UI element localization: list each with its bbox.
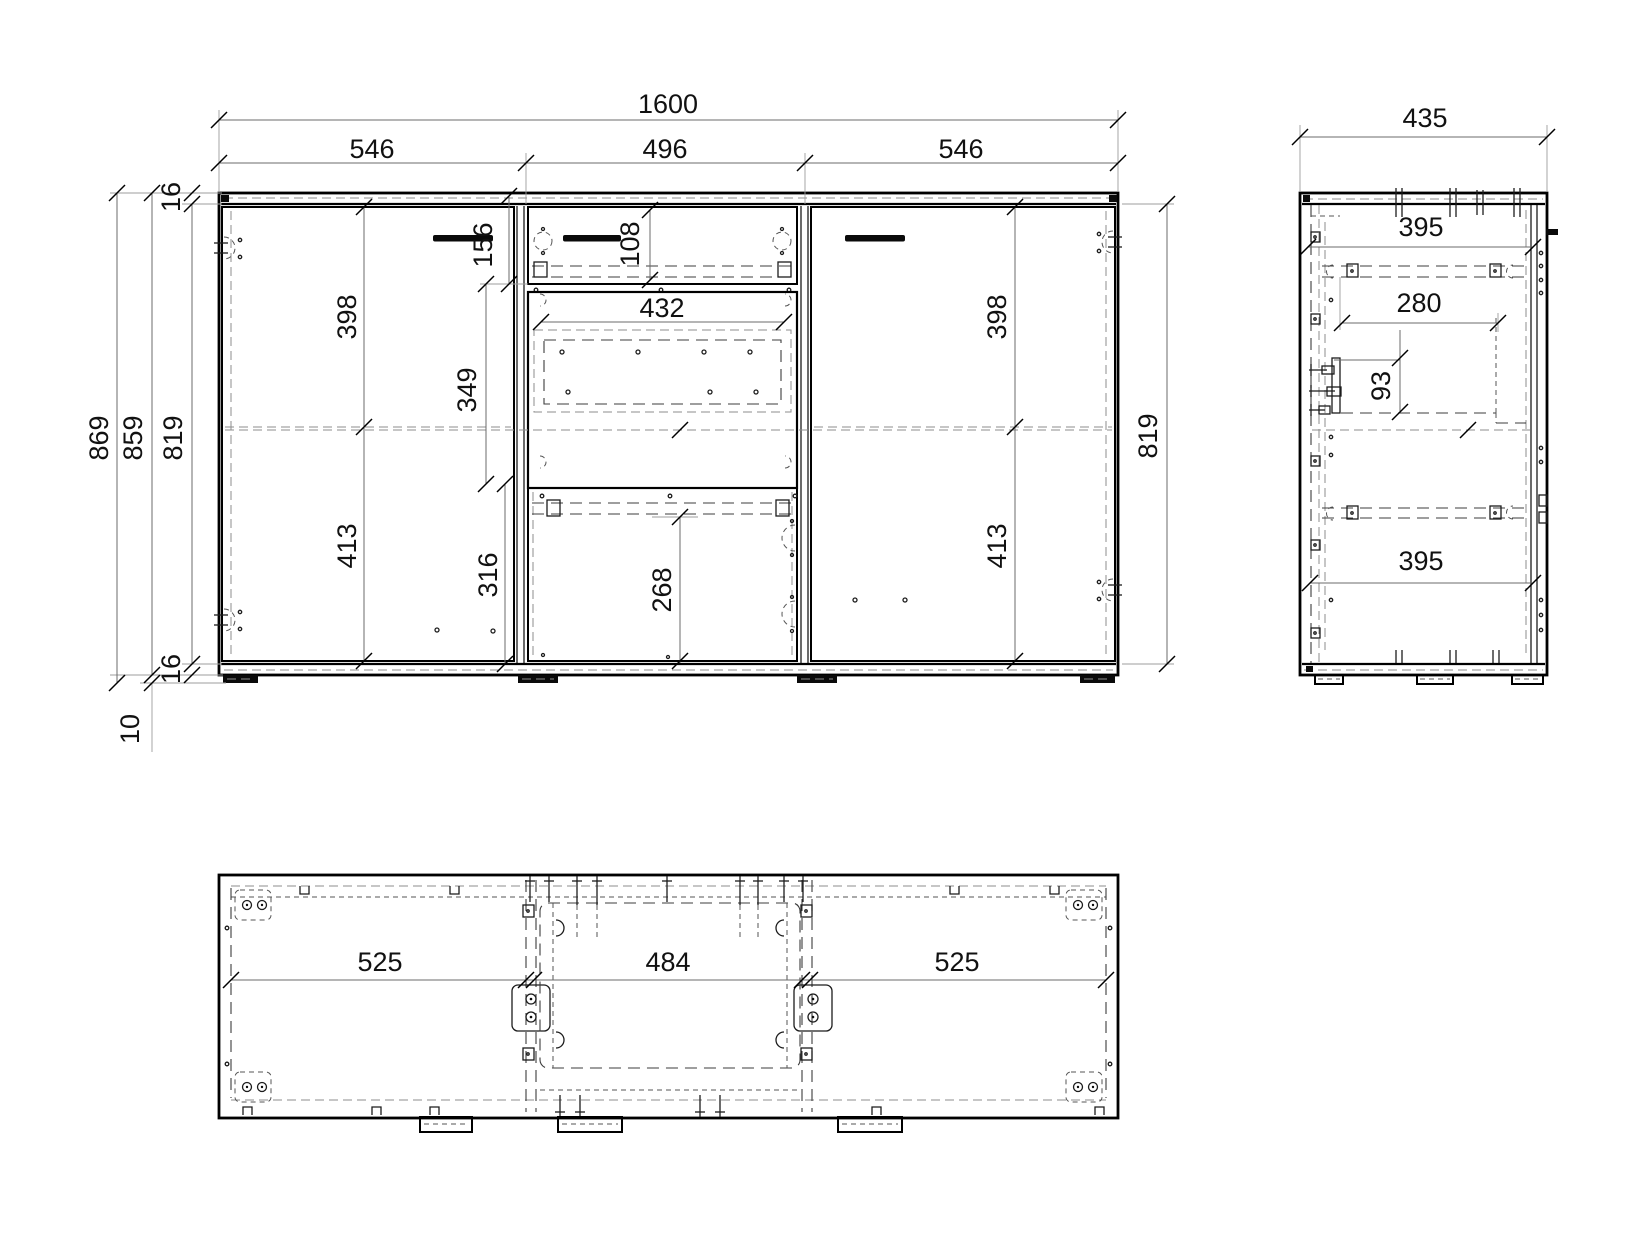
side-carcass (1300, 188, 1558, 684)
bottom-corner-brackets (235, 890, 1102, 1102)
dim-front-drawer-front: 108 (615, 221, 645, 266)
dim-front-feet-height: 10 (115, 714, 145, 744)
drawer-handle (563, 235, 621, 242)
dim-front-lower-front: 268 (647, 567, 677, 612)
drawing-page: 1600 546 496 546 869 859 819 16 16 10 15… (0, 0, 1645, 1233)
dim-front-drawer-zone: 156 (468, 222, 498, 267)
front-view: 1600 546 496 546 869 859 819 16 16 10 15… (84, 89, 1175, 752)
dim-bottom-seg-left: 525 (357, 947, 402, 977)
dim-front-lower-zone: 316 (473, 552, 503, 597)
dim-front-seg-mid: 496 (642, 134, 687, 164)
bottom-carcass (219, 875, 1118, 1118)
front-drawer (528, 207, 797, 292)
dim-front-left-lower: 413 (332, 523, 362, 568)
dim-front-top-thickness: 16 (156, 182, 186, 212)
dim-front-total-width: 1600 (638, 89, 698, 119)
dim-side-drawer-height: 93 (1366, 371, 1396, 401)
dim-side-drawer-depth: 280 (1396, 288, 1441, 318)
bottom-screws (525, 876, 808, 1117)
dim-front-height-interior: 819 (158, 415, 188, 460)
dim-front-seg-right: 546 (938, 134, 983, 164)
dim-front-height-interior-right: 819 (1133, 413, 1163, 458)
bottom-view: 525 484 525 (219, 875, 1118, 1132)
dim-side-top-depth: 395 (1398, 212, 1443, 242)
dim-front-open-height: 349 (452, 367, 482, 412)
front-right-door (811, 207, 1122, 661)
dim-side-bottom-depth: 395 (1398, 546, 1443, 576)
side-drawer (1309, 318, 1526, 423)
dim-side-depth: 435 (1402, 103, 1447, 133)
dim-front-height-total: 869 (84, 415, 114, 460)
dim-front-bottom-thickness: 16 (156, 654, 186, 684)
furniture-technical-drawing: 1600 546 496 546 869 859 819 16 16 10 15… (0, 0, 1645, 1233)
side-view: 435 395 280 93 395 (1292, 103, 1558, 684)
dim-front-shelf-width: 432 (639, 293, 684, 323)
right-door-handle (845, 235, 905, 242)
dim-front-left-upper: 398 (332, 294, 362, 339)
dim-front-right-upper: 398 (982, 294, 1012, 339)
dim-front-seg-left: 546 (349, 134, 394, 164)
dim-bottom-seg-mid: 484 (645, 947, 690, 977)
front-dimensions: 1600 546 496 546 869 859 819 16 16 10 15… (84, 89, 1175, 752)
dim-front-height-body: 859 (118, 415, 148, 460)
bottom-fittings (243, 876, 1104, 1117)
dim-front-right-lower: 413 (982, 523, 1012, 568)
dim-bottom-seg-right: 525 (934, 947, 979, 977)
bottom-dimensions: 525 484 525 (223, 947, 1114, 988)
side-handle (1546, 229, 1558, 235)
